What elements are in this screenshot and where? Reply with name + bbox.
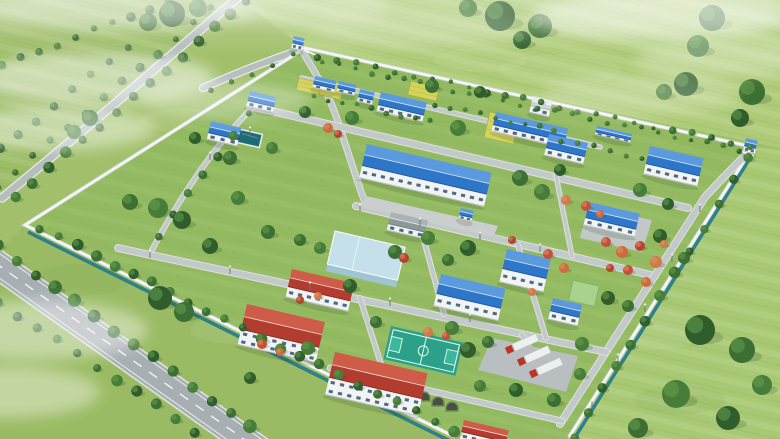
tree-highlight [12, 170, 16, 174]
tree-highlight [483, 337, 490, 344]
tree-highlight [679, 253, 686, 260]
tree-highlight [315, 243, 322, 250]
tree-highlight [353, 60, 357, 64]
tree-highlight [535, 185, 544, 194]
tree-highlight [392, 70, 395, 73]
tree-highlight [520, 94, 524, 98]
tree-highlight [12, 257, 18, 263]
tree-highlight [518, 104, 520, 106]
tree-highlight [446, 322, 454, 330]
tree-highlight [399, 115, 402, 118]
tree-highlight [184, 190, 189, 195]
tree-highlight [94, 365, 98, 369]
tree-highlight [267, 143, 274, 150]
lamp-head [539, 243, 541, 245]
tree-highlight [656, 130, 658, 132]
tree-highlight [584, 409, 589, 414]
tree-highlight [199, 171, 204, 176]
tree-highlight [244, 420, 251, 427]
tree-highlight [576, 338, 584, 346]
tree-highlight [422, 232, 430, 240]
tree-highlight [731, 339, 745, 353]
tree-highlight [562, 196, 568, 202]
tree-highlight [129, 269, 135, 275]
tree-highlight [652, 126, 654, 128]
tree-highlight [449, 427, 455, 433]
tree-highlight [494, 116, 496, 118]
tree-highlight [730, 175, 735, 180]
tree-highlight [374, 390, 379, 395]
tree-highlight [418, 79, 421, 82]
tree-highlight [634, 184, 642, 192]
tree-highlight [371, 317, 378, 324]
tree-highlight [636, 242, 642, 248]
tree-highlight [340, 101, 342, 103]
tree-highlight [232, 192, 240, 200]
tree-highlight [424, 328, 430, 334]
tree-highlight [640, 156, 643, 159]
tree-highlight [753, 376, 764, 387]
tree-highlight [202, 308, 207, 313]
tree-highlight [229, 79, 232, 82]
tree-highlight [44, 163, 50, 169]
tree-highlight [30, 152, 34, 156]
tree-highlight [701, 226, 706, 231]
tree-highlight [613, 115, 616, 118]
tree-highlight [73, 240, 79, 246]
tree-highlight [592, 143, 595, 146]
tree-highlight [475, 381, 482, 388]
tree-highlight [575, 369, 582, 376]
tree-highlight [112, 375, 118, 381]
tree-highlight [36, 226, 41, 231]
tree-highlight [346, 112, 354, 120]
tree-highlight [110, 262, 116, 268]
tree-highlight [449, 80, 451, 82]
tree-highlight [651, 257, 658, 264]
tree-highlight [602, 238, 608, 244]
lamp-head [209, 151, 211, 153]
tree-highlight [622, 123, 625, 126]
tree-highlight [448, 106, 451, 109]
tree-highlight [214, 153, 219, 158]
tree-highlight [709, 135, 713, 139]
tree-highlight [510, 384, 518, 392]
scene-canvas [0, 0, 780, 439]
tree-highlight [442, 332, 446, 336]
tree-highlight [623, 301, 630, 308]
tree-highlight [663, 199, 670, 206]
tree-highlight [227, 409, 233, 415]
tree-highlight [669, 127, 673, 131]
tree-highlight [548, 394, 556, 402]
tree-highlight [582, 202, 588, 208]
tree-highlight [535, 106, 538, 109]
tree-highlight [239, 324, 243, 328]
tree-highlight [190, 133, 197, 140]
tree-highlight [673, 136, 675, 138]
tree-highlight [467, 92, 470, 95]
tree-highlight [334, 370, 340, 376]
tree-highlight [354, 382, 359, 387]
tree-highlight [655, 291, 661, 297]
tree-highlight [386, 75, 389, 78]
tree-highlight [639, 125, 642, 128]
tree-highlight [354, 67, 356, 69]
tree-highlight [171, 414, 177, 420]
tree-highlight [250, 73, 253, 76]
arched-cellar [446, 402, 458, 411]
tree-highlight [715, 200, 720, 205]
tree-highlight [314, 55, 318, 59]
tree-highlight [654, 230, 662, 238]
tree-highlight [606, 264, 610, 268]
tree-highlight [148, 351, 154, 357]
lamp-head [419, 217, 421, 219]
lamp-head [309, 281, 311, 283]
tree-highlight [245, 373, 252, 380]
tree-highlight [174, 212, 184, 222]
tree-highlight [523, 122, 525, 124]
tree-highlight [717, 407, 730, 420]
tree-highlight [295, 235, 302, 242]
mist-cloud [140, 82, 310, 118]
tree-highlight [642, 278, 648, 284]
tree-highlight [626, 340, 632, 346]
tree-highlight [598, 384, 603, 389]
tree-highlight [334, 130, 338, 134]
tree-highlight [296, 296, 300, 300]
tree-highlight [502, 92, 506, 96]
lamp-head [617, 353, 619, 355]
tree-highlight [433, 103, 436, 106]
tree-highlight [605, 121, 608, 124]
lamp-head [389, 297, 391, 299]
mist-cloud [540, 75, 740, 115]
aerial-site-rendering [0, 0, 780, 439]
tree-highlight [747, 144, 750, 147]
lamp-head [359, 203, 361, 205]
lamp-head [644, 303, 646, 305]
tree-highlight [132, 386, 138, 392]
tree-highlight [400, 254, 406, 260]
tree-highlight [369, 105, 372, 108]
tree-highlight [721, 143, 724, 146]
lamp-head [671, 253, 673, 255]
tree-highlight [509, 121, 511, 123]
lamp-head [149, 249, 151, 251]
tree-highlight [149, 199, 160, 210]
tree-highlight [315, 359, 321, 365]
tree-highlight [596, 210, 600, 214]
tree-highlight [513, 171, 522, 180]
tree-highlight [571, 434, 576, 439]
tree-highlight [689, 138, 691, 140]
lamp-head [699, 203, 701, 205]
tree-highlight [69, 294, 76, 301]
lamp-head [249, 126, 251, 128]
tree-highlight [320, 60, 322, 62]
tree-highlight [461, 343, 470, 352]
tree-highlight [478, 111, 481, 114]
tree-highlight [624, 266, 630, 272]
tree-highlight [326, 99, 328, 101]
tree-highlight [152, 399, 158, 405]
tree-highlight [544, 250, 550, 256]
tree-highlight [258, 340, 264, 346]
tree-highlight [312, 94, 315, 97]
tree-highlight [475, 87, 482, 94]
tree-highlight [384, 111, 387, 114]
tree-highlight [588, 117, 591, 120]
tree-highlight [575, 141, 578, 144]
tree-highlight [175, 303, 186, 314]
tree-highlight [467, 86, 469, 88]
lamp-head [469, 313, 471, 315]
tree-highlight [55, 233, 59, 237]
tree-highlight [670, 267, 676, 273]
tree-highlight [413, 407, 418, 412]
tree-highlight [314, 292, 318, 296]
tree-highlight [508, 236, 512, 240]
tree-highlight [123, 195, 132, 204]
tree-highlight [262, 226, 270, 234]
tree-highlight [558, 139, 561, 142]
tree-highlight [190, 428, 196, 434]
tree-highlight [552, 107, 555, 110]
tree-highlight [461, 241, 470, 250]
tree-highlight [728, 141, 732, 145]
tree-highlight [689, 129, 693, 133]
tree-highlight [334, 58, 338, 62]
horizon-haze [0, 0, 780, 55]
tree-highlight [413, 116, 416, 119]
tree-highlight [207, 397, 213, 403]
tree-highlight [430, 77, 433, 80]
arched-cellar [432, 397, 444, 406]
tree-highlight [302, 342, 310, 350]
tree-highlight [570, 111, 573, 114]
lamp-head [479, 231, 481, 233]
tree-highlight [344, 280, 352, 288]
tree-highlight [428, 118, 431, 121]
tree-highlight [389, 246, 397, 254]
tree-highlight [149, 287, 162, 300]
tree-highlight [147, 277, 153, 283]
tree-highlight [229, 132, 234, 137]
tree-highlight [443, 255, 450, 262]
tree-highlight [32, 271, 38, 277]
tree-highlight [687, 317, 704, 334]
tree-highlight [426, 80, 434, 88]
tree-highlight [602, 292, 610, 300]
tree-highlight [221, 315, 226, 320]
tree-highlight [686, 248, 690, 252]
tree-highlight [411, 75, 414, 78]
tree-highlight [537, 123, 540, 126]
tree-highlight [705, 139, 708, 142]
tree-highlight [203, 239, 212, 248]
tree-highlight [49, 281, 56, 288]
tree-highlight [324, 124, 330, 130]
tree-highlight [624, 154, 627, 157]
tree-highlight [168, 366, 174, 372]
tree-highlight [432, 418, 436, 422]
tree-highlight [369, 71, 372, 74]
tree-highlight [608, 148, 611, 151]
tree-highlight [450, 90, 453, 93]
tree-highlight [538, 99, 542, 103]
tree-highlight [295, 352, 301, 358]
tree-highlight [744, 154, 749, 159]
tree-highlight [617, 247, 624, 254]
tree-highlight [337, 62, 339, 64]
tree-highlight [27, 179, 33, 185]
tree-highlight [528, 288, 532, 292]
tree-highlight [224, 152, 232, 160]
tree-highlight [463, 107, 466, 110]
tree-highlight [629, 419, 640, 430]
tree-highlight [664, 382, 679, 397]
tree-highlight [373, 64, 376, 67]
tree-highlight [92, 251, 98, 257]
tree-highlight [451, 121, 460, 130]
tree-highlight [276, 348, 280, 352]
lamp-head [591, 399, 593, 401]
tree-highlight [560, 264, 566, 270]
tree-highlight [640, 316, 646, 322]
tree-highlight [393, 397, 398, 402]
tree-highlight [270, 64, 273, 67]
tree-highlight [660, 240, 664, 244]
tree-highlight [632, 121, 634, 123]
tree-highlight [355, 102, 357, 104]
tree-highlight [155, 233, 159, 237]
tree-highlight [612, 362, 618, 368]
tree-highlight [501, 98, 503, 100]
tree-highlight [555, 165, 562, 172]
tree-highlight [737, 149, 740, 152]
tree-highlight [551, 128, 554, 131]
lamp-head [229, 265, 231, 267]
tree-highlight [11, 192, 17, 198]
tree-highlight [188, 383, 194, 389]
tree-highlight [732, 110, 742, 120]
tree-highlight [741, 81, 755, 95]
tree-highlight [402, 76, 405, 79]
